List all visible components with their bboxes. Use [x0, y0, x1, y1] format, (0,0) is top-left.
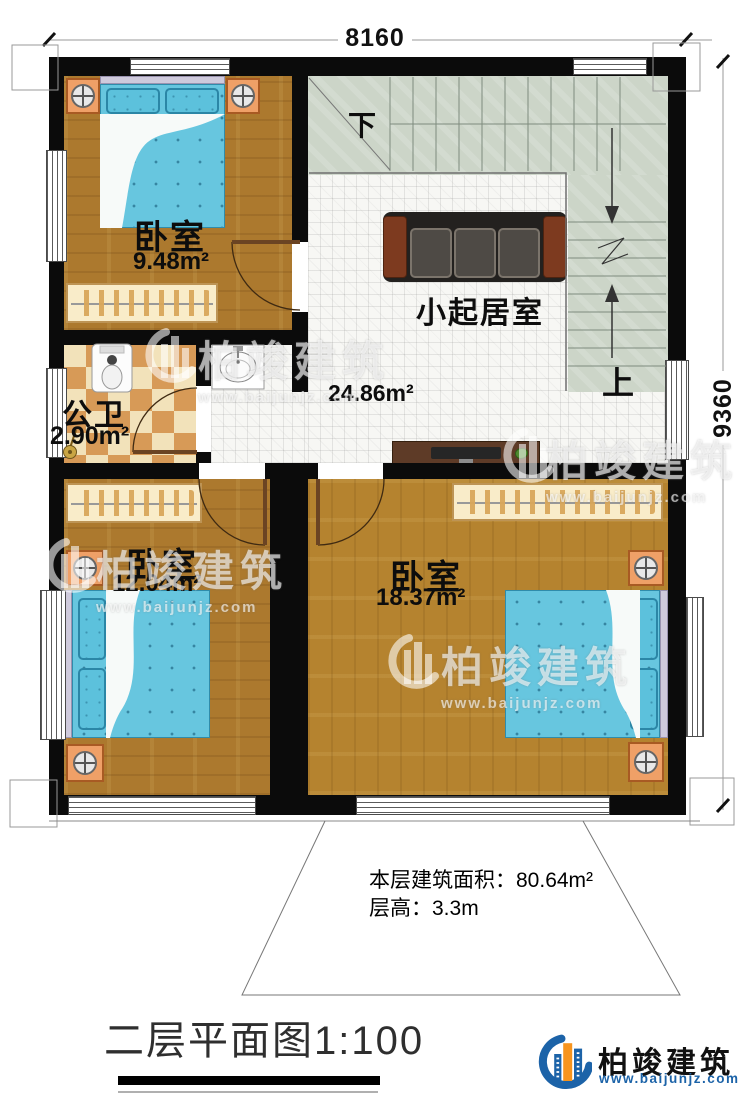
monitor-icon [431, 447, 501, 459]
window [573, 58, 647, 75]
lamp-icon [634, 556, 658, 580]
floor-area-note: 本层建筑面积：80.64m² [369, 864, 593, 894]
sofa-armrest [543, 216, 567, 278]
wall-h-middle-b [265, 463, 318, 479]
wall-h-middle-a [49, 463, 199, 479]
bedroom-right-area: 18.37m² [376, 584, 465, 612]
window [356, 796, 610, 815]
nightstand [628, 742, 664, 782]
bed-top-headboard [100, 76, 225, 84]
brand-url: www.baijunjz.com [599, 1071, 740, 1086]
floor-height-note: 层高：3.3m [369, 892, 479, 922]
dimension-top-value: 8160 [338, 24, 412, 52]
bed-top-pillow [165, 88, 219, 114]
bathroom-area: 2.90m² [50, 422, 129, 451]
nightstand [628, 550, 664, 586]
lamp-icon [73, 751, 97, 775]
watermark: 柏竣建筑 www.baijunjz.com [96, 538, 288, 616]
title-underline-thin [118, 1091, 378, 1093]
lamp-icon [634, 750, 658, 774]
bedroom-top-area: 9.48m² [133, 248, 209, 276]
watermark-url: www.baijunjz.com [198, 389, 390, 406]
stair-up-label: 上 [602, 358, 636, 404]
watermark-text: 柏竣建筑 [96, 538, 288, 599]
watermark: 柏竣建筑 www.baijunjz.com [546, 428, 738, 506]
window [40, 590, 66, 740]
window [68, 796, 256, 815]
bed-top-pillow [106, 88, 160, 114]
watermark-url: www.baijunjz.com [441, 695, 633, 712]
page-title: 二层平面图1:100 [104, 1008, 424, 1066]
desk [392, 441, 540, 465]
stair-down-label: 下 [348, 104, 378, 144]
window [130, 58, 230, 75]
sofa-cushion [454, 228, 496, 278]
sofa [383, 212, 567, 282]
floor-plan-page: 卧室 9.48m² 公卫 2.90m² 小起居室 24.86m² 卧室 12.0… [0, 0, 750, 1104]
watermark-url: www.baijunjz.com [546, 489, 738, 506]
wall-partition-bedrooms [270, 479, 308, 795]
sofa-cushion [410, 228, 452, 278]
watermark-text: 柏竣建筑 [546, 428, 738, 489]
lamp-icon [73, 556, 97, 580]
wall-bedroom-top-right-a [292, 57, 308, 242]
hangers [74, 290, 210, 315]
living-room-label: 小起居室 [416, 288, 544, 332]
wall-bathroom-right-b [196, 452, 211, 463]
nightstand [66, 744, 104, 782]
title-underline [118, 1076, 380, 1085]
lamp-icon [231, 84, 255, 108]
wardrobe [66, 483, 202, 523]
lamp-icon [71, 84, 95, 108]
bed-right-headboard [660, 590, 668, 738]
wardrobe [66, 283, 218, 323]
window [686, 597, 704, 737]
bed-left-pillow [78, 668, 106, 730]
watermark-text: 柏竣建筑 [441, 634, 633, 695]
watermark-url: www.baijunjz.com [96, 599, 288, 616]
nightstand [66, 78, 100, 114]
watermark-text: 柏竣建筑 [198, 328, 390, 389]
window [46, 150, 67, 262]
hangers [74, 490, 194, 515]
brand-logo-icon [538, 1034, 592, 1092]
sofa-armrest [383, 216, 407, 278]
plant-icon [515, 448, 528, 459]
watermark: 柏竣建筑 www.baijunjz.com [441, 634, 633, 712]
nightstand [226, 78, 260, 114]
watermark: 柏竣建筑 www.baijunjz.com [198, 328, 390, 406]
sofa-cushion [498, 228, 540, 278]
